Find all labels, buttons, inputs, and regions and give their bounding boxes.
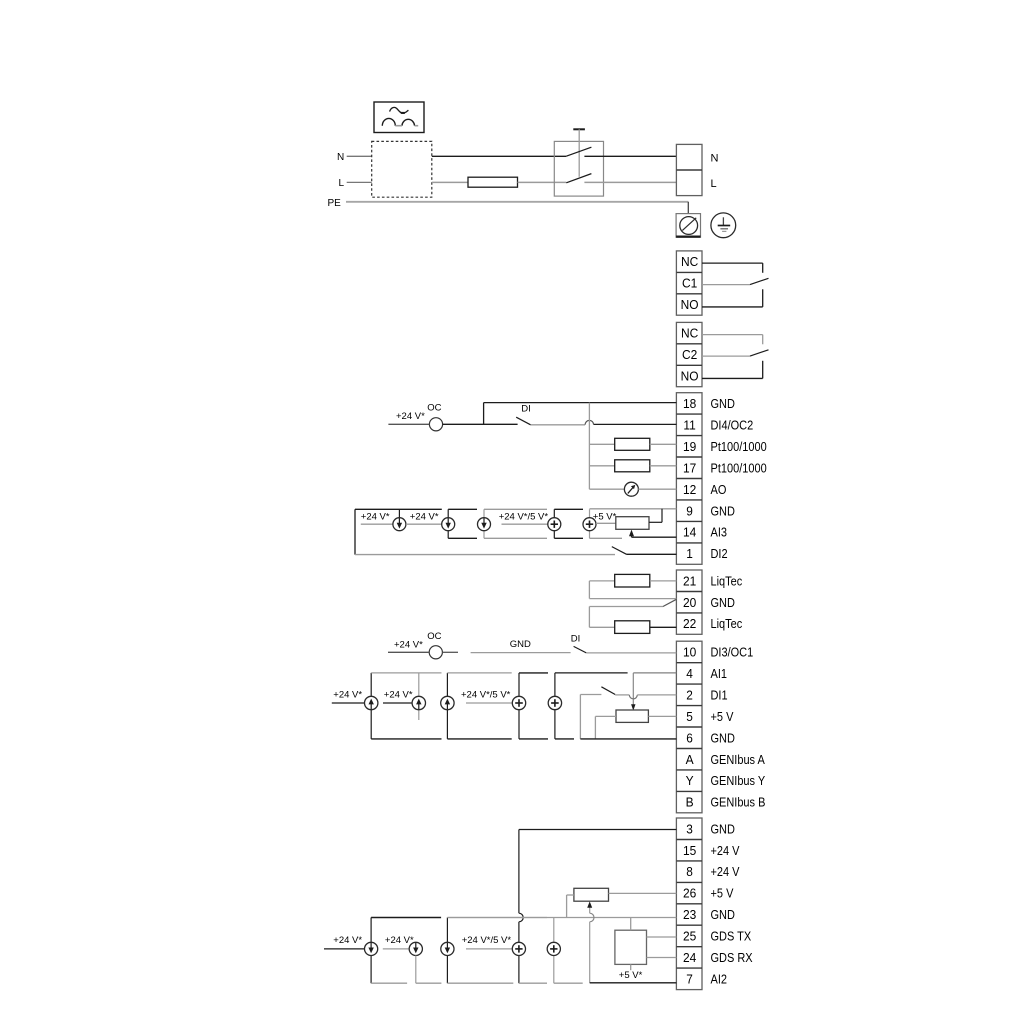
svg-text:DI3/OC1: DI3/OC1 bbox=[711, 645, 754, 660]
svg-text:Pt100/1000: Pt100/1000 bbox=[711, 439, 767, 454]
svg-text:+24 V: +24 V bbox=[711, 843, 740, 858]
svg-text:NO: NO bbox=[681, 297, 699, 312]
svg-text:+5 V: +5 V bbox=[711, 886, 734, 901]
svg-text:6: 6 bbox=[686, 730, 693, 745]
svg-text:N: N bbox=[337, 152, 344, 163]
svg-text:+24 V*: +24 V* bbox=[333, 689, 362, 700]
svg-text:4: 4 bbox=[686, 666, 693, 681]
svg-text:26: 26 bbox=[683, 886, 696, 901]
svg-text:2: 2 bbox=[686, 687, 693, 702]
svg-text:GENIbus A: GENIbus A bbox=[711, 752, 766, 767]
svg-text:20: 20 bbox=[683, 595, 696, 610]
svg-text:AI1: AI1 bbox=[711, 666, 728, 681]
svg-text:A: A bbox=[686, 752, 694, 767]
svg-text:22: 22 bbox=[683, 616, 696, 631]
svg-text:GDS RX: GDS RX bbox=[711, 950, 753, 965]
svg-text:+5 V*: +5 V* bbox=[593, 512, 617, 523]
svg-text:L: L bbox=[711, 178, 717, 190]
svg-text:NO: NO bbox=[681, 369, 699, 384]
svg-text:DI: DI bbox=[521, 404, 531, 415]
svg-text:23: 23 bbox=[683, 907, 696, 922]
svg-text:AI2: AI2 bbox=[711, 972, 728, 987]
svg-text:8: 8 bbox=[686, 864, 693, 879]
svg-text:GND: GND bbox=[711, 730, 735, 745]
svg-text:10: 10 bbox=[683, 645, 696, 660]
svg-text:Pt100/1000: Pt100/1000 bbox=[711, 460, 767, 475]
svg-text:+5 V*: +5 V* bbox=[619, 970, 643, 981]
svg-text:DI1: DI1 bbox=[711, 687, 728, 702]
svg-text:Y: Y bbox=[686, 773, 694, 788]
svg-text:9: 9 bbox=[686, 503, 693, 518]
svg-text:GND: GND bbox=[711, 821, 735, 836]
svg-text:+24 V*: +24 V* bbox=[394, 640, 423, 651]
svg-text:25: 25 bbox=[683, 929, 696, 944]
svg-text:B: B bbox=[686, 795, 694, 810]
svg-text:+24 V*: +24 V* bbox=[385, 935, 414, 946]
svg-text:PE: PE bbox=[328, 198, 342, 209]
svg-text:+24 V*: +24 V* bbox=[396, 411, 425, 422]
svg-text:12: 12 bbox=[683, 482, 696, 497]
svg-text:+24 V*: +24 V* bbox=[333, 935, 362, 946]
svg-text:DI4/OC2: DI4/OC2 bbox=[711, 418, 754, 433]
svg-text:N: N bbox=[711, 153, 719, 165]
svg-text:NC: NC bbox=[681, 254, 698, 269]
svg-text:24: 24 bbox=[683, 950, 696, 965]
svg-text:GENIbus Y: GENIbus Y bbox=[711, 773, 766, 788]
svg-text:GND: GND bbox=[711, 595, 735, 610]
svg-text:DI: DI bbox=[571, 634, 581, 645]
svg-text:15: 15 bbox=[683, 843, 696, 858]
svg-text:17: 17 bbox=[683, 460, 696, 475]
svg-text:OC: OC bbox=[427, 403, 441, 414]
svg-text:+24 V*: +24 V* bbox=[410, 512, 439, 523]
svg-text:LiqTec: LiqTec bbox=[711, 616, 743, 631]
svg-text:18: 18 bbox=[683, 396, 696, 411]
svg-text:C1: C1 bbox=[682, 276, 697, 291]
svg-text:21: 21 bbox=[683, 573, 696, 588]
svg-text:5: 5 bbox=[686, 709, 693, 724]
svg-text:GND: GND bbox=[711, 907, 735, 922]
svg-text:DI2: DI2 bbox=[711, 546, 728, 561]
svg-text:1: 1 bbox=[686, 546, 693, 561]
svg-text:C2: C2 bbox=[682, 347, 697, 362]
svg-text:L: L bbox=[339, 178, 345, 189]
svg-text:GND: GND bbox=[510, 639, 531, 650]
svg-text:+5 V: +5 V bbox=[711, 709, 734, 724]
svg-text:+24 V*/5 V*: +24 V*/5 V* bbox=[462, 935, 512, 946]
svg-text:3: 3 bbox=[686, 821, 693, 836]
svg-text:19: 19 bbox=[683, 439, 696, 454]
svg-text:+24 V*: +24 V* bbox=[384, 689, 413, 700]
svg-text:7: 7 bbox=[686, 972, 693, 987]
svg-text:NC: NC bbox=[681, 326, 698, 341]
svg-text:11: 11 bbox=[683, 418, 695, 433]
svg-text:+24 V: +24 V bbox=[711, 864, 740, 879]
svg-text:+24 V*/5 V*: +24 V*/5 V* bbox=[461, 689, 511, 700]
svg-text:GND: GND bbox=[711, 503, 735, 518]
svg-text:GND: GND bbox=[711, 396, 735, 411]
svg-text:LiqTec: LiqTec bbox=[711, 573, 743, 588]
svg-text:OC: OC bbox=[427, 631, 441, 642]
svg-text:+24 V*: +24 V* bbox=[361, 512, 390, 523]
svg-text:AI3: AI3 bbox=[711, 525, 728, 540]
svg-text:AO: AO bbox=[711, 482, 727, 497]
svg-text:+24 V*/5 V*: +24 V*/5 V* bbox=[499, 512, 549, 523]
svg-text:14: 14 bbox=[683, 525, 696, 540]
svg-text:GENIbus B: GENIbus B bbox=[711, 795, 766, 810]
svg-text:GDS TX: GDS TX bbox=[711, 929, 752, 944]
